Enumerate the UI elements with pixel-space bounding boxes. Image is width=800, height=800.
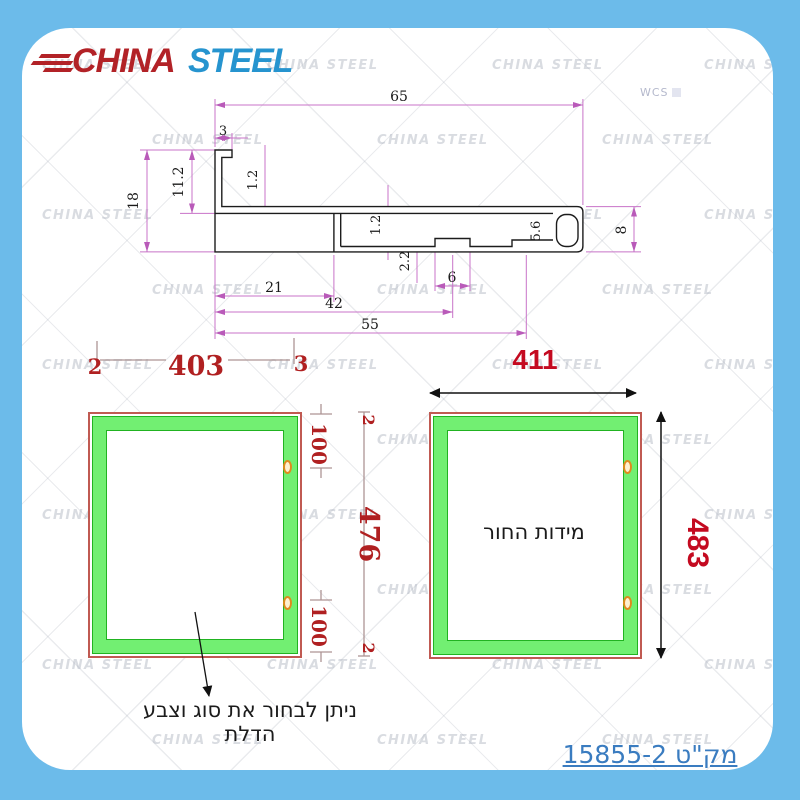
dim-21: 21 <box>265 280 283 296</box>
sku-link[interactable]: מק"ט 15855-2 <box>550 740 750 769</box>
dim-65: 65 <box>390 89 408 105</box>
logo-speed-line <box>43 68 74 72</box>
dim-476: 476 <box>353 506 384 562</box>
dim-1-2-leg: 1.2 <box>246 170 261 191</box>
side-dim-texts: 2 100 476 100 2 <box>307 414 384 653</box>
door-choice-caption: ניתן לבחור את סוג וצבע הדלת <box>122 698 378 746</box>
logo-word-steel: STEEL <box>188 42 293 81</box>
dim-100-top: 100 <box>307 423 331 465</box>
top-dim-texts: 2 403 3 <box>88 351 309 382</box>
dim-100-bottom: 100 <box>307 605 331 647</box>
hinge-hole <box>283 596 292 610</box>
hole-width-411: 411 <box>492 344 578 376</box>
dim-gap-right: 3 <box>294 351 309 376</box>
height-arrow <box>654 405 668 665</box>
logo-speed-line <box>39 54 72 58</box>
watermark-text: CHINA STEEL <box>42 658 154 673</box>
dim-3: 3 <box>219 124 227 139</box>
dim-42: 42 <box>325 296 343 312</box>
dim-18: 18 <box>126 192 142 210</box>
hinge-hole <box>623 460 632 474</box>
dim-8: 8 <box>614 226 630 235</box>
watermark-text: CHINA STEEL <box>704 658 773 673</box>
dim-1-2-web: 1.2 <box>369 215 384 236</box>
watermark-text: CHINA STEEL <box>492 58 604 73</box>
profile-outline <box>215 150 583 252</box>
dim-gap-left: 2 <box>88 354 103 379</box>
watermark-text: CHINA STEEL <box>492 658 604 673</box>
dim-403: 403 <box>168 351 224 382</box>
logo-speed-line <box>31 61 74 65</box>
dim-side-gap-top: 2 <box>359 414 378 425</box>
door-panel-right: מידות החור <box>429 412 642 659</box>
hinge-hole <box>283 460 292 474</box>
dim-5-6: 5.6 <box>529 221 544 242</box>
hinge-hole <box>623 596 632 610</box>
left-panel-side-dims: 2 100 476 100 2 <box>300 402 390 668</box>
watermark-text: CHINA STEEL <box>704 508 773 523</box>
watermark-text: CHINA STEEL <box>704 58 773 73</box>
hole-height-483: 483 <box>680 518 714 568</box>
product-drawing-page: CHINA STEELCHINA STEELCHINA STEELCHINA S… <box>0 0 800 800</box>
left-panel-top-dims: 2 403 3 <box>80 336 320 382</box>
watermark-text: CHINA STEEL <box>704 358 773 373</box>
profile-cross-section: 65 3 1.2 11.2 18 1.2 21 42 55 2.2 6 5.6 … <box>120 85 740 345</box>
dim-side-gap-bottom: 2 <box>359 642 378 653</box>
dim-11-2: 11.2 <box>171 166 187 197</box>
width-arrow <box>424 386 642 400</box>
watermark-text: CHINA STEEL <box>377 733 489 748</box>
logo-word-china: CHINA <box>72 42 175 81</box>
dim-2-2: 2.2 <box>398 251 413 272</box>
caption-leader-arrow <box>165 600 235 710</box>
dim-55: 55 <box>361 317 379 333</box>
china-steel-logo: CHINA STEEL <box>30 40 260 88</box>
hole-dimensions-label: מידות החור <box>449 520 619 544</box>
dim-6: 6 <box>448 270 457 286</box>
